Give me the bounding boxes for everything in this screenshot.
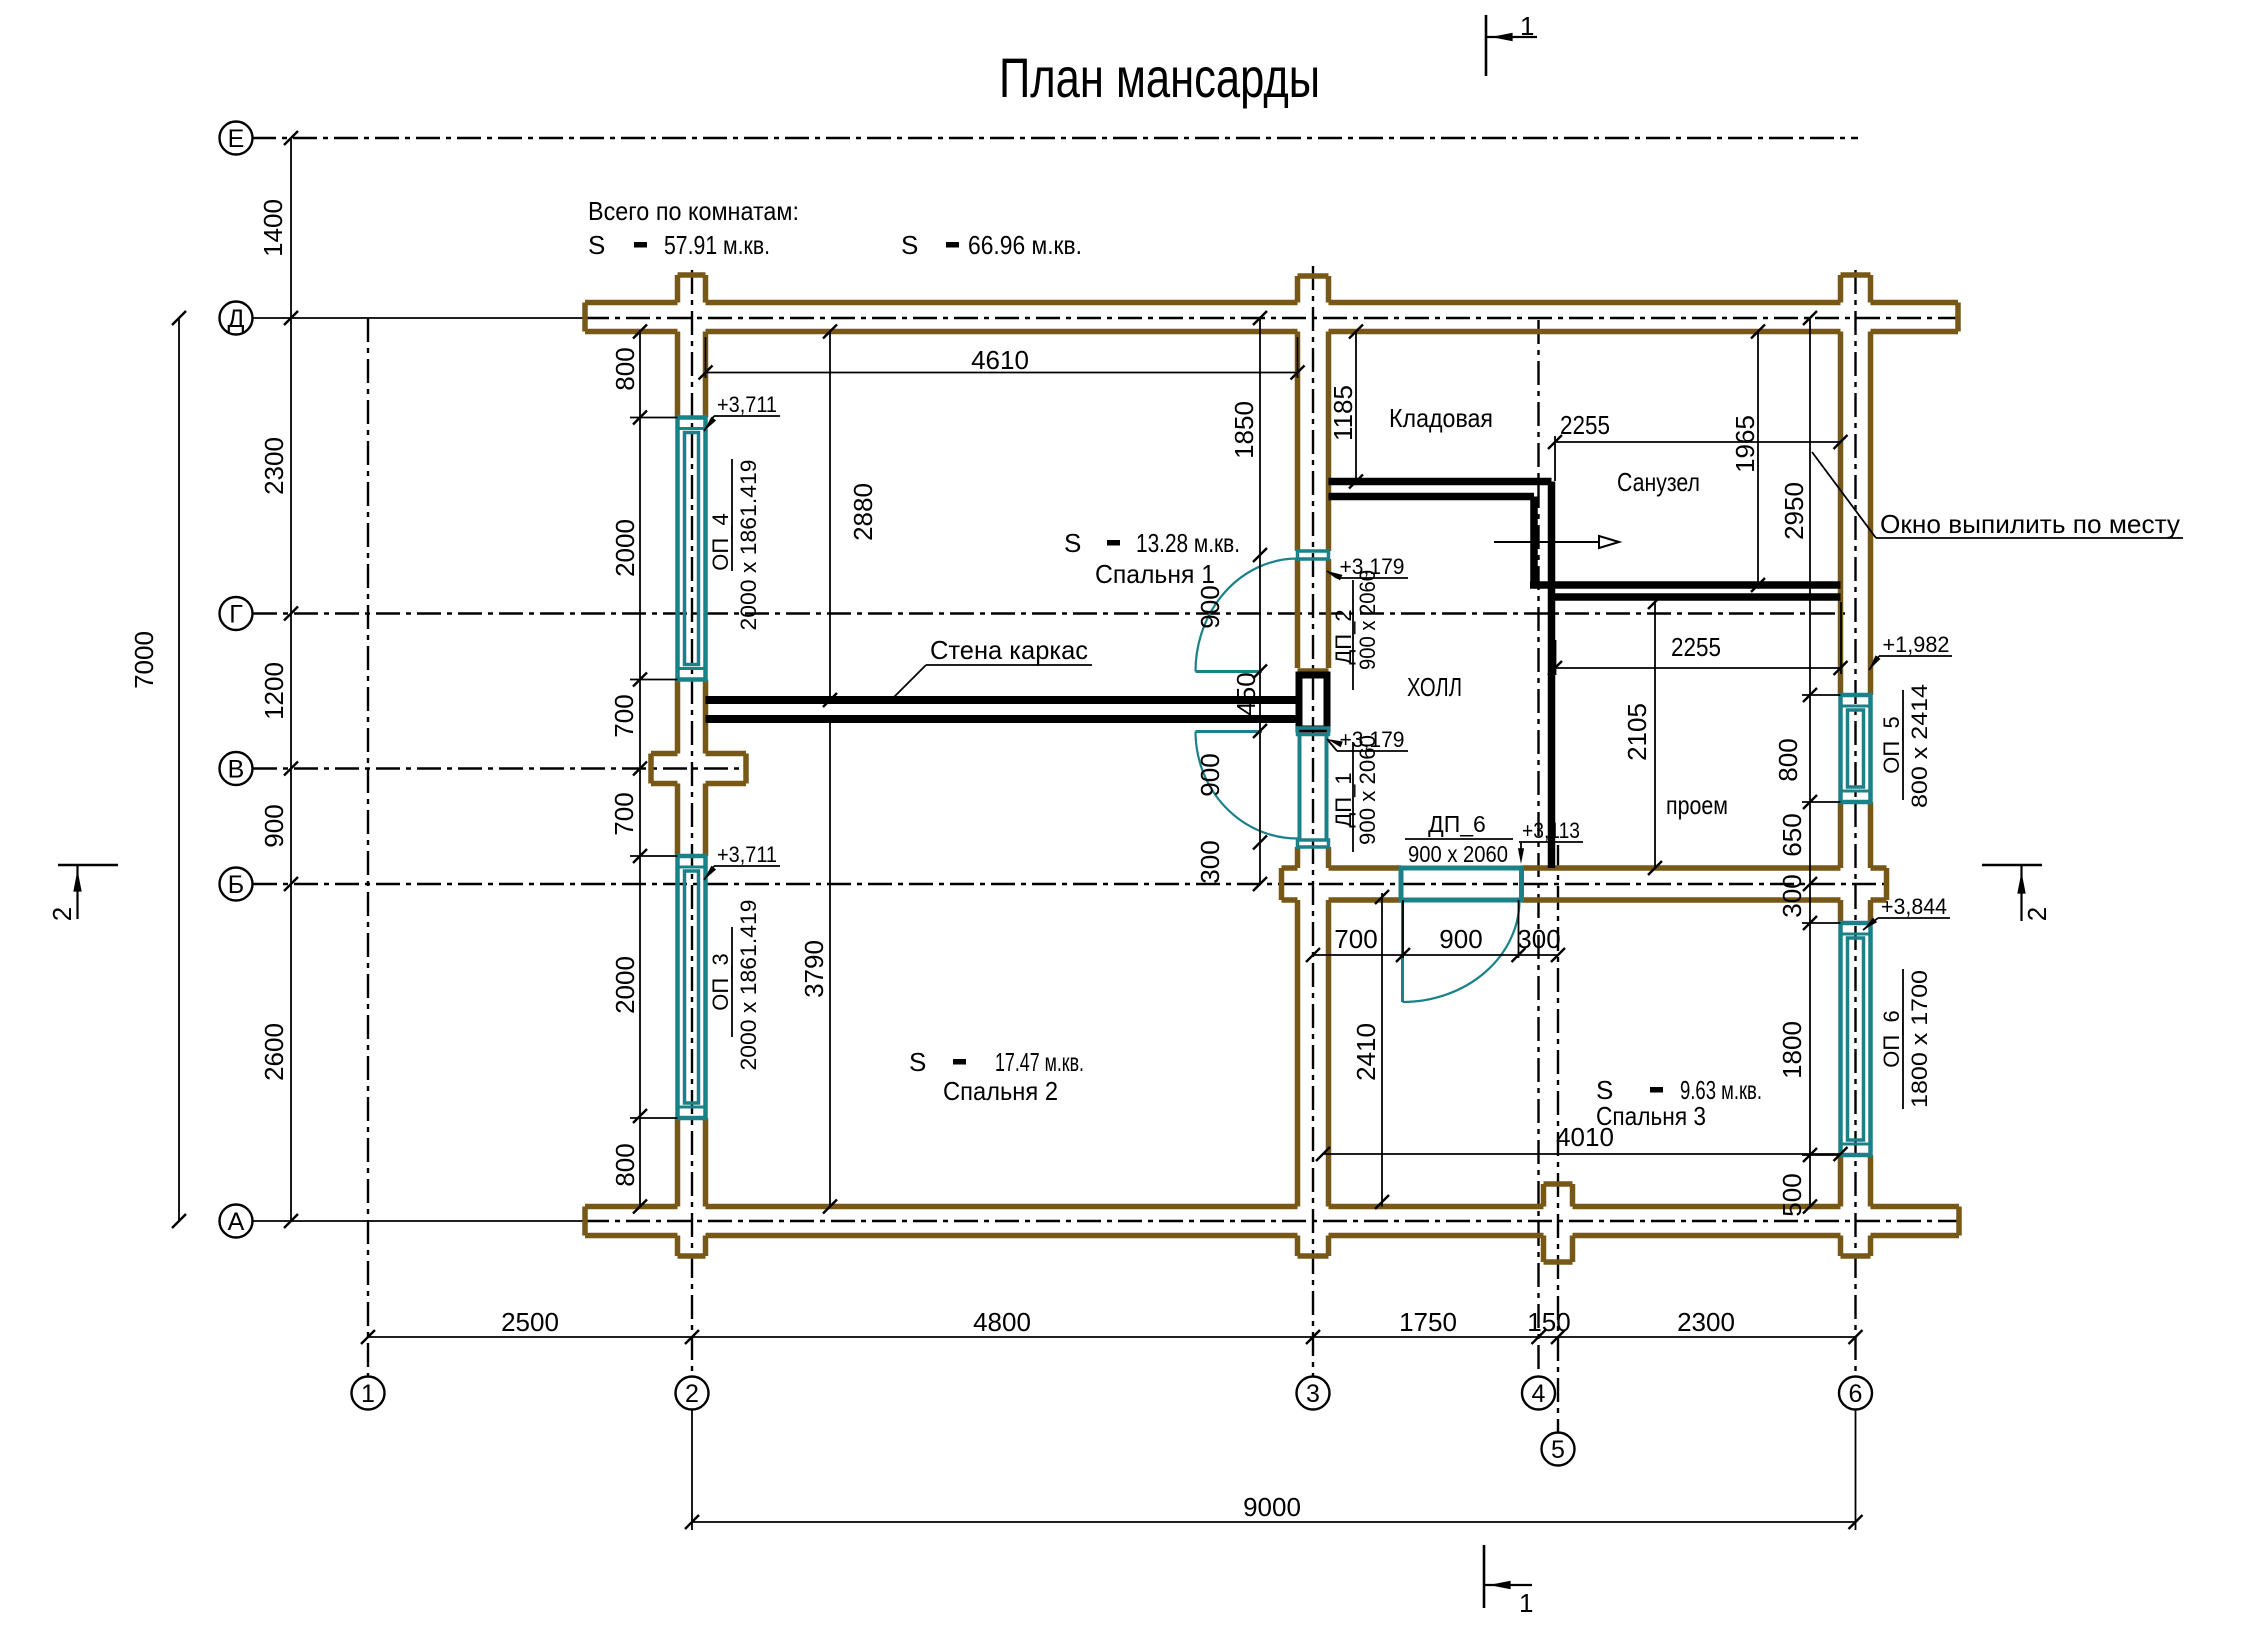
svg-text:1: 1 [361,1380,375,1408]
svg-text:800: 800 [610,347,640,390]
svg-text:800 x 2414: 800 x 2414 [1907,684,1932,808]
svg-text:4610: 4610 [971,345,1029,375]
svg-text:2410: 2410 [1351,1023,1381,1081]
svg-text:Спальня 1: Спальня 1 [1095,559,1215,589]
svg-text:2000: 2000 [610,519,640,577]
svg-text:650: 650 [1777,813,1807,856]
svg-text:+1,982: +1,982 [1883,632,1950,657]
svg-text:300: 300 [1517,924,1560,954]
svg-text:Кладовая: Кладовая [1389,403,1493,433]
svg-text:900: 900 [1195,585,1225,628]
svg-text:+3,711: +3,711 [717,842,777,867]
svg-text:800: 800 [1773,738,1803,781]
svg-text:300: 300 [1195,840,1225,883]
svg-text:5: 5 [1551,1436,1565,1464]
svg-text:Санузел: Санузел [1617,467,1700,497]
svg-text:800: 800 [610,1143,640,1186]
svg-text:ДП_6: ДП_6 [1428,811,1486,837]
svg-text:900 x 2060: 900 x 2060 [1355,735,1380,845]
svg-text:2000: 2000 [610,956,640,1014]
svg-text:S: S [901,230,918,260]
svg-text:2000 x 1861.419: 2000 x 1861.419 [736,900,761,1071]
svg-text:1750: 1750 [1399,1307,1457,1337]
svg-text:Д: Д [228,305,245,333]
svg-text:3790: 3790 [799,940,829,998]
svg-text:3: 3 [1306,1380,1320,1408]
svg-text:2600: 2600 [259,1023,289,1081]
svg-text:1965: 1965 [1730,415,1760,473]
svg-text:проем: проем [1666,790,1728,820]
svg-text:ОП_4: ОП_4 [708,513,733,570]
svg-text:Г: Г [229,601,243,629]
svg-text:17.47 м.кв.: 17.47 м.кв. [995,1047,1084,1077]
svg-text:4: 4 [1532,1380,1546,1408]
svg-text:ОП_3: ОП_3 [708,953,733,1010]
svg-text:57.91 м.кв.: 57.91 м.кв. [664,230,770,260]
svg-text:700: 700 [609,694,639,737]
svg-text:2500: 2500 [501,1307,559,1337]
svg-text:2105: 2105 [1622,703,1652,761]
svg-text:ОП_6: ОП_6 [1879,1010,1904,1067]
svg-text:500: 500 [1777,1173,1807,1216]
svg-text:2880: 2880 [848,483,878,541]
svg-text:Спальня 2: Спальня 2 [943,1076,1058,1106]
svg-text:150: 150 [1527,1307,1570,1337]
svg-text:1185: 1185 [1328,385,1358,441]
svg-text:700: 700 [1334,924,1377,954]
svg-text:+3,113: +3,113 [1522,818,1580,843]
svg-text:1800 x 1700: 1800 x 1700 [1907,970,1932,1108]
svg-text:9000: 9000 [1243,1492,1301,1522]
svg-text:S: S [909,1047,926,1077]
svg-text:300: 300 [1777,874,1807,917]
svg-text:2000 x 1861.419: 2000 x 1861.419 [736,460,761,631]
svg-text:ХОЛЛ: ХОЛЛ [1407,672,1462,702]
svg-text:В: В [228,756,245,784]
svg-text:900 x 2060: 900 x 2060 [1355,570,1380,670]
svg-text:700: 700 [609,792,639,835]
svg-text:Стена каркас: Стена каркас [930,635,1088,665]
svg-text:1: 1 [1519,1588,1533,1618]
svg-text:900: 900 [259,804,289,847]
svg-text:7000: 7000 [129,631,159,689]
svg-text:6: 6 [1849,1380,1863,1408]
svg-text:Всего по комнатам:: Всего по комнатам: [588,196,799,226]
svg-text:2: 2 [2022,907,2052,921]
svg-text:2: 2 [685,1380,699,1408]
svg-text:4010: 4010 [1556,1122,1614,1152]
svg-text:2255: 2255 [1671,632,1721,662]
svg-text:900 x 2060: 900 x 2060 [1408,841,1508,867]
svg-text:План мансарды: План мансарды [999,46,1320,109]
svg-text:900: 900 [1439,924,1482,954]
svg-text:1800: 1800 [1777,1021,1807,1079]
svg-text:13.28 м.кв.: 13.28 м.кв. [1136,528,1240,558]
svg-text:1200: 1200 [259,662,289,720]
svg-text:Б: Б [228,871,244,899]
svg-text:1400: 1400 [258,199,288,257]
svg-text:ОП_5: ОП_5 [1879,716,1904,773]
svg-text:Е: Е [228,125,245,153]
svg-text:S: S [1064,528,1081,558]
svg-text:+3,711: +3,711 [717,392,777,417]
svg-text:S: S [588,230,605,260]
svg-text:66.96 м.кв.: 66.96 м.кв. [968,230,1082,260]
svg-text:450: 450 [1231,672,1261,715]
svg-text:4800: 4800 [973,1307,1031,1337]
svg-text:А: А [228,1208,245,1236]
svg-text:2: 2 [47,907,77,921]
svg-text:900: 900 [1195,753,1225,796]
svg-text:2300: 2300 [259,437,289,495]
svg-text:Окно выпилить по месту: Окно выпилить по месту [1880,509,2180,539]
svg-text:1: 1 [1520,11,1534,41]
svg-text:2300: 2300 [1677,1307,1735,1337]
svg-text:+3,844: +3,844 [1881,894,1947,919]
svg-text:2950: 2950 [1779,482,1809,540]
svg-text:1850: 1850 [1229,401,1259,459]
svg-text:2255: 2255 [1560,410,1610,440]
